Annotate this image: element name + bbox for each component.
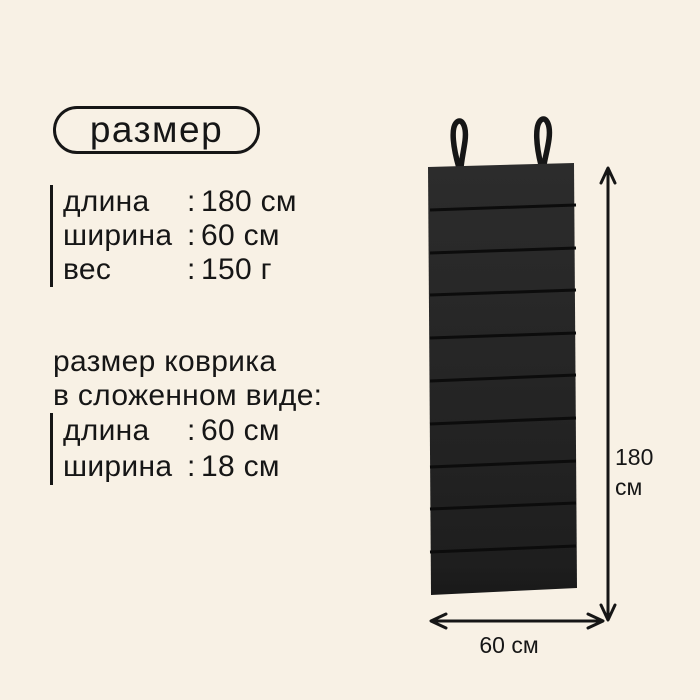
spec-label: ширина	[63, 219, 187, 253]
strap-left-icon	[453, 121, 465, 168]
spec-label: длина	[63, 414, 187, 448]
height-arrow	[601, 168, 615, 620]
spec-row-width: ширина : 60 см	[63, 219, 297, 253]
folded-heading-line1: размер коврика	[53, 345, 322, 379]
spec-list-folded: длина : 60 см ширина : 18 см	[50, 413, 280, 485]
product-size-infographic: размер длина : 180 см ширина : 60 см вес…	[0, 0, 700, 700]
spec-value: 150 г	[201, 253, 297, 287]
folded-heading-line2: в сложенном виде:	[53, 379, 322, 413]
strap-right-icon	[537, 119, 550, 165]
width-arrow	[431, 614, 603, 628]
height-label-unit: см	[615, 474, 642, 500]
spec-value: 180 см	[201, 185, 297, 219]
spec-colon: :	[187, 450, 201, 484]
spec-row-weight: вес : 150 г	[63, 253, 297, 287]
width-label: 60 см	[479, 632, 538, 658]
spec-colon: :	[187, 253, 201, 287]
spec-row-folded-length: длина : 60 см	[63, 413, 280, 449]
spec-value: 60 см	[201, 219, 297, 253]
spec-colon: :	[187, 414, 201, 448]
spec-colon: :	[187, 185, 201, 219]
size-title-badge: размер	[53, 106, 260, 154]
spec-label: длина	[63, 185, 187, 219]
spec-list-unfolded: длина : 180 см ширина : 60 см вес : 150 …	[50, 185, 297, 287]
mat-diagram: 180 см 60 см	[410, 105, 680, 665]
spec-row-length: длина : 180 см	[63, 185, 297, 219]
height-label-value: 180	[615, 444, 653, 470]
spec-row-folded-width: ширина : 18 см	[63, 449, 280, 485]
spec-value: 18 см	[201, 450, 280, 484]
size-title: размер	[90, 109, 223, 151]
folded-size-heading: размер коврика в сложенном виде:	[53, 345, 322, 413]
spec-label: вес	[63, 253, 187, 287]
spec-colon: :	[187, 219, 201, 253]
spec-label: ширина	[63, 450, 187, 484]
mat-diagram-svg: 180 см 60 см	[410, 105, 680, 665]
spec-value: 60 см	[201, 414, 280, 448]
